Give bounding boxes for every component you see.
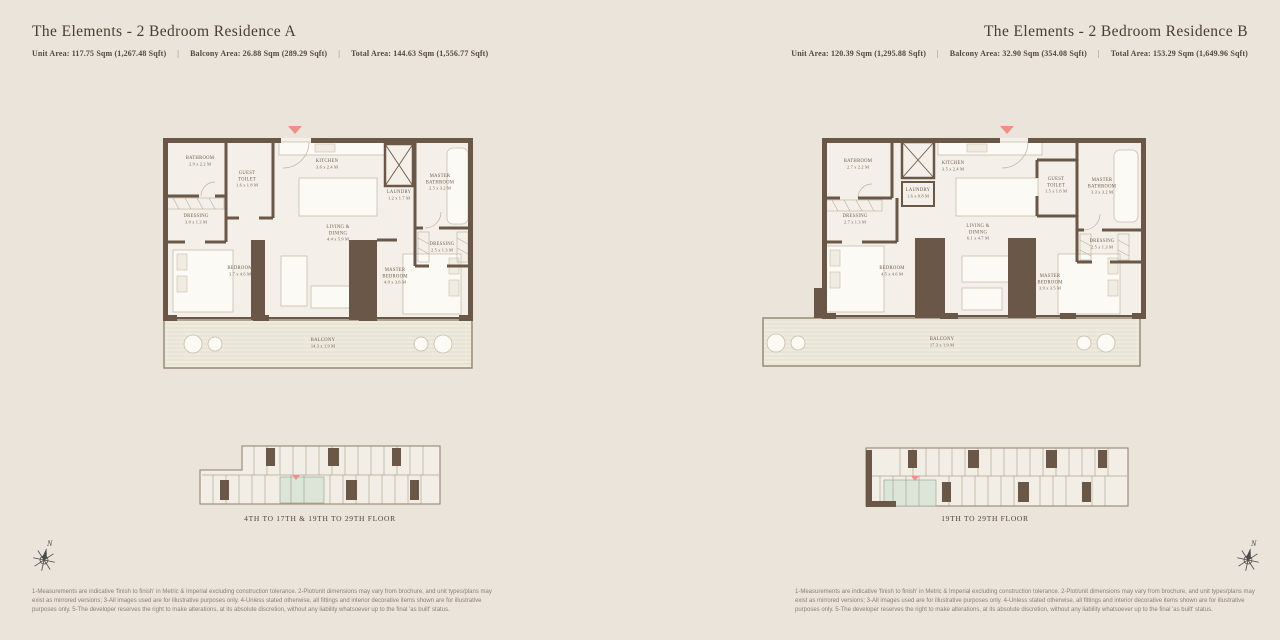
entry-marker-icon: [1000, 126, 1014, 134]
keyplan-caption: 4TH TO 17TH & 19TH TO 29TH FLOOR: [196, 514, 444, 523]
area-stats: Unit Area: 117.75 Sqm (1,267.48 Sqft)|Ba…: [32, 49, 488, 58]
unit-area: Unit Area: 117.75 Sqm (1,267.48 Sqft): [32, 49, 166, 58]
stat-separator: |: [937, 49, 939, 58]
floorplan-b-drawing: [762, 138, 1146, 368]
stat-separator: |: [338, 49, 340, 58]
page-title: The Elements - 2 Bedroom Residence A: [32, 23, 296, 41]
balcony-area: Balcony Area: 26.88 Sqm (289.29 Sqft): [190, 49, 327, 58]
total-area: Total Area: 153.29 Sqm (1,649.96 Sqft): [1111, 49, 1248, 58]
svg-text:N: N: [46, 539, 53, 548]
floorplan-residence-b: BATHROOM2.7 x 2.2 M LAUNDRY1.6 x 0.8 M K…: [762, 138, 1146, 368]
keyplan-b-drawing: [850, 436, 1132, 516]
keyplan-a-drawing: [196, 434, 444, 514]
unit-area: Unit Area: 120.39 Sqm (1,295.88 Sqft): [791, 49, 926, 58]
page-title: The Elements - 2 Bedroom Residence B: [984, 23, 1248, 41]
balcony-area: Balcony Area: 32.90 Sqm (354.08 Sqft): [950, 49, 1087, 58]
keyplan-caption: 19TH TO 29TH FLOOR: [844, 514, 1126, 523]
compass-icon: N: [1234, 537, 1264, 575]
floorplan-a-drawing: [163, 138, 473, 371]
compass-icon: N: [30, 537, 60, 575]
keyplan-residence-b: [850, 436, 1132, 516]
entry-marker-icon: [288, 126, 302, 134]
stat-separator: |: [1098, 49, 1100, 58]
page-residence-b: The Elements - 2 Bedroom Residence B Uni…: [640, 0, 1280, 640]
legal-disclaimer: 1-Measurements are indicative 'finish to…: [795, 588, 1263, 615]
floorplan-residence-a: BATHROOM2.9 x 2.2 M GUEST TOILET1.6 x 1.…: [163, 138, 473, 371]
area-stats: Unit Area: 120.39 Sqm (1,295.88 Sqft)|Ba…: [791, 49, 1248, 58]
stat-separator: |: [177, 49, 179, 58]
total-area: Total Area: 144.63 Sqm (1,556.77 Sqft): [351, 49, 488, 58]
legal-disclaimer: 1-Measurements are indicative 'finish to…: [32, 588, 500, 615]
svg-text:N: N: [1250, 539, 1257, 548]
page-residence-a: The Elements - 2 Bedroom Residence A Uni…: [0, 0, 640, 640]
keyplan-residence-a: [196, 434, 444, 514]
